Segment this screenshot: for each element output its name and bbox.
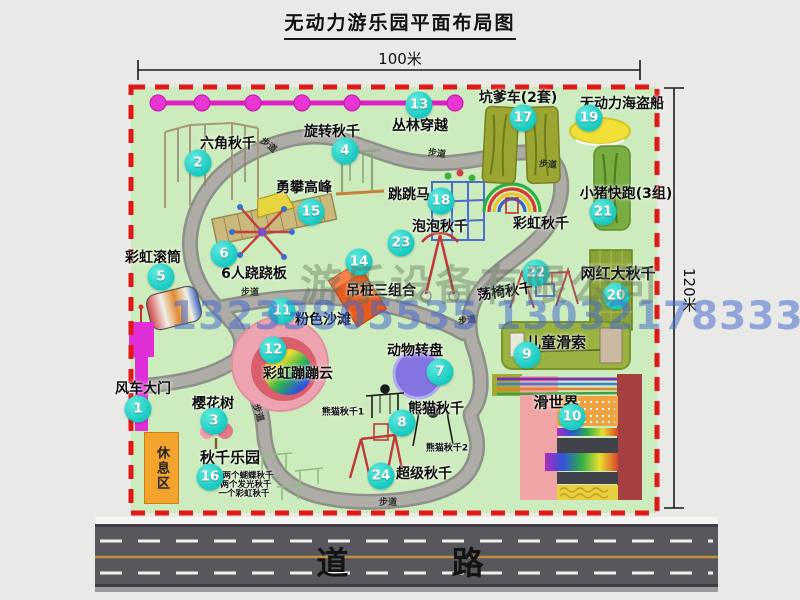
bubble-2: 2 bbox=[185, 150, 212, 177]
label-panda-swing-1: 熊猫秋千1 bbox=[322, 405, 364, 418]
bubble-23: 23 bbox=[388, 230, 415, 257]
bubble-8: 8 bbox=[389, 410, 416, 437]
bubble-18: 18 bbox=[428, 188, 455, 215]
label-panda-swing: 熊猫秋千 bbox=[408, 398, 464, 418]
bubble-22: 22 bbox=[523, 260, 550, 287]
bubble-3: 3 bbox=[201, 408, 228, 435]
label-bubble-swing: 泡泡秋千 bbox=[412, 216, 468, 236]
label-footpath-4: 步道 bbox=[241, 285, 259, 298]
label-seesaw: 6人跷跷板 bbox=[221, 263, 287, 283]
label-rotating-swing: 旋转秋千 bbox=[304, 121, 360, 141]
label-windmill-gate: 风车大门 bbox=[115, 378, 171, 398]
bubble-24: 24 bbox=[368, 463, 395, 490]
bubble-7: 7 bbox=[427, 359, 454, 386]
bubble-9: 9 bbox=[514, 342, 541, 369]
bubble-12: 12 bbox=[260, 337, 287, 364]
label-net-swing: 网红大秋千 bbox=[580, 263, 655, 284]
label-pink-beach: 粉色沙滩 bbox=[295, 309, 351, 329]
bubble-15: 15 bbox=[298, 199, 325, 226]
height-dimension-label: 120米 bbox=[679, 268, 700, 312]
bubble-5: 5 bbox=[148, 264, 175, 291]
bubble-17: 17 bbox=[510, 105, 537, 132]
label-hexagon-swing: 六角秋千 bbox=[200, 133, 256, 153]
bubble-11: 11 bbox=[269, 298, 296, 325]
label-jumping-horse: 跳跳马 bbox=[388, 184, 430, 204]
rest-area-box: 休息区 bbox=[144, 432, 179, 504]
bubble-13: 13 bbox=[406, 92, 433, 119]
bubble-20: 20 bbox=[603, 283, 630, 310]
bubble-14: 14 bbox=[346, 249, 373, 276]
label-footpath-3: 步道 bbox=[538, 156, 557, 171]
label-footpath-7: 步道 bbox=[457, 312, 477, 327]
road-label: 道 路 bbox=[0, 538, 800, 584]
label-rainbow-swing: 彩虹秋千 bbox=[513, 213, 569, 233]
bubble-21: 21 bbox=[590, 199, 617, 226]
label-footpath-2: 步道 bbox=[427, 145, 447, 160]
bubble-16: 16 bbox=[197, 464, 224, 491]
label-pit-cart: 坑爹车(2套) bbox=[479, 87, 558, 107]
label-bounce-cloud: 彩虹蹦蹦云 bbox=[263, 363, 333, 383]
bubble-19: 19 bbox=[576, 105, 603, 132]
label-climbing-peak: 勇攀高峰 bbox=[276, 177, 332, 197]
page-title: 无动力游乐园平面布局图 bbox=[0, 8, 800, 40]
park-layout-canvas: 无动力游乐园平面布局图 100米 120米 游乐设备有限公司 132338055… bbox=[0, 0, 800, 600]
label-piggy-run: 小猪快跑(3组) bbox=[580, 183, 673, 203]
bubble-1: 1 bbox=[125, 396, 152, 423]
bubble-10: 10 bbox=[559, 404, 586, 431]
label-rainbow-roller: 彩虹滚筒 bbox=[125, 247, 181, 267]
bubble-4: 4 bbox=[332, 138, 359, 165]
label-swing-note-3: 一个彩虹秋千 bbox=[218, 487, 269, 499]
label-super-swing: 超级秋千 bbox=[396, 463, 452, 483]
label-hanging-piles: 吊桩三组合 bbox=[346, 280, 416, 300]
bubble-6: 6 bbox=[211, 241, 238, 268]
label-footpath-6: 步道 bbox=[379, 495, 397, 508]
label-animal-turntable: 动物转盘 bbox=[387, 340, 443, 360]
width-dimension-label: 100米 bbox=[0, 48, 800, 69]
label-panda-swing-2: 熊猫秋千2 bbox=[426, 441, 468, 454]
